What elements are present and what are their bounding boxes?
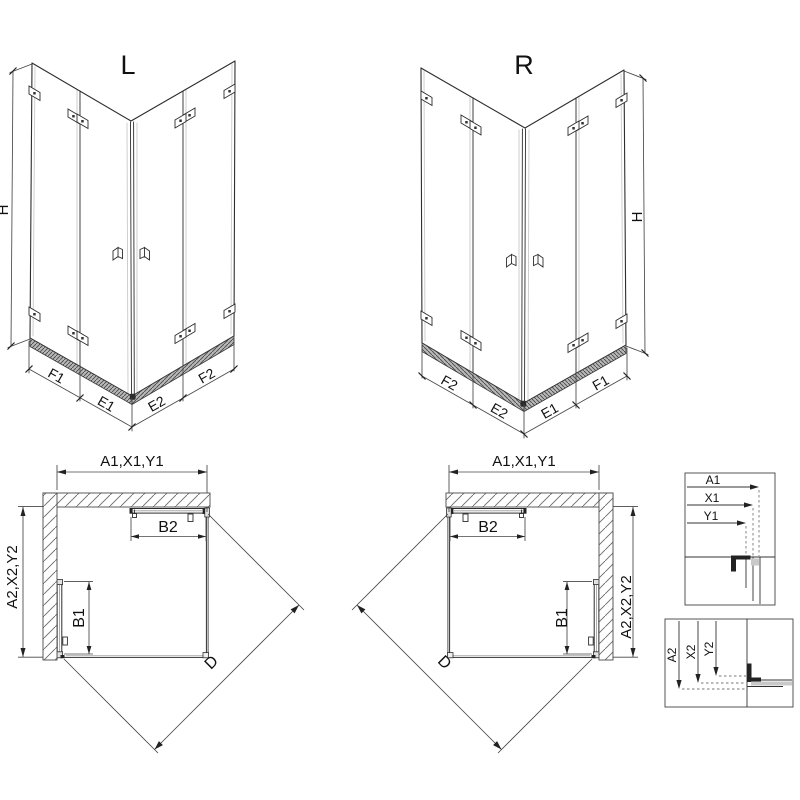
building-walls xyxy=(43,493,613,660)
wall-top-right-plan xyxy=(446,493,613,507)
wall-profile-section xyxy=(747,664,761,683)
detail-box-depth xyxy=(665,619,793,707)
detail-depth-arrowheads xyxy=(676,667,718,689)
plan-right-door-b2-label: B2 xyxy=(478,519,498,536)
profile-shadow xyxy=(751,682,792,686)
plan-left-door-b2-label: B2 xyxy=(158,519,178,536)
detail-width-arrow-lines xyxy=(685,487,775,604)
corner-post xyxy=(131,122,135,396)
detail-depth-arrow-lines xyxy=(679,619,792,707)
plan-left-width-dim-label: A1,X1,Y1 xyxy=(100,453,163,470)
hinge-brackets xyxy=(29,84,235,346)
glass-panel-outline xyxy=(234,61,235,336)
wall-top-left-plan xyxy=(43,493,210,507)
glass-shading-lines xyxy=(33,64,232,394)
iso-right-f1-label: F1 xyxy=(589,372,611,394)
threshold-sill xyxy=(30,338,132,405)
glass-panel-outline xyxy=(30,63,32,338)
technical-drawing-page: L H F1 E1 E2 F2 R H F2 E2 E1 F1 A1,X1,Y1… xyxy=(0,0,800,800)
detail-width-dashed-refs xyxy=(746,490,759,556)
plan-right-width-dim-label: A1,X1,Y1 xyxy=(492,453,555,470)
sill-corner-cap xyxy=(130,394,136,400)
plan-left-depth-dim-label: A2,X2,Y2 xyxy=(4,545,21,608)
plan-view-left-linework xyxy=(18,465,304,753)
detail-y2-label: Y2 xyxy=(702,641,716,656)
profile-shadow xyxy=(751,559,759,566)
plan-right-depth-dim-label: A2,X2,Y2 xyxy=(618,575,635,638)
plan-left-door-b1-label: B1 xyxy=(71,608,88,628)
iso-right-e1-label: E1 xyxy=(538,399,561,421)
detail-x2-label: X2 xyxy=(684,644,698,659)
iso-left-f1-label: F1 xyxy=(45,365,67,387)
plan-right-door-b1-label: B1 xyxy=(554,608,571,628)
detail-a2-label: A2 xyxy=(665,647,679,662)
door-b1 xyxy=(57,580,68,659)
iso-right-height-label: H xyxy=(629,212,646,223)
iso-right-f2-label: F2 xyxy=(438,372,460,394)
detail-x1-label: X1 xyxy=(705,491,720,505)
wall-side-left-plan xyxy=(43,493,57,660)
iso-left-e2-label: E2 xyxy=(145,392,168,414)
bracket-screws xyxy=(33,90,231,340)
detail-box-width xyxy=(685,473,775,605)
iso-right-label: R xyxy=(514,50,534,80)
iso-left-f2-label: F2 xyxy=(195,365,217,387)
shower-enclosure-diagram: L H F1 E1 E2 F2 R H F2 E2 E1 F1 A1,X1,Y1… xyxy=(0,0,800,800)
iso-left-e1-label: E1 xyxy=(95,392,118,414)
plan-view-right-linework xyxy=(352,465,638,753)
wall-side-right-plan xyxy=(599,493,613,660)
detail-y1-label: Y1 xyxy=(704,509,719,523)
iso-left-height-label: H xyxy=(0,205,12,216)
detail-a1-label: A1 xyxy=(706,473,721,487)
detail-depth-dashed-refs xyxy=(682,676,746,689)
iso-right-e2-label: E2 xyxy=(488,399,511,421)
wall-profile-section xyxy=(731,556,751,572)
iso-left-label: L xyxy=(120,50,135,80)
